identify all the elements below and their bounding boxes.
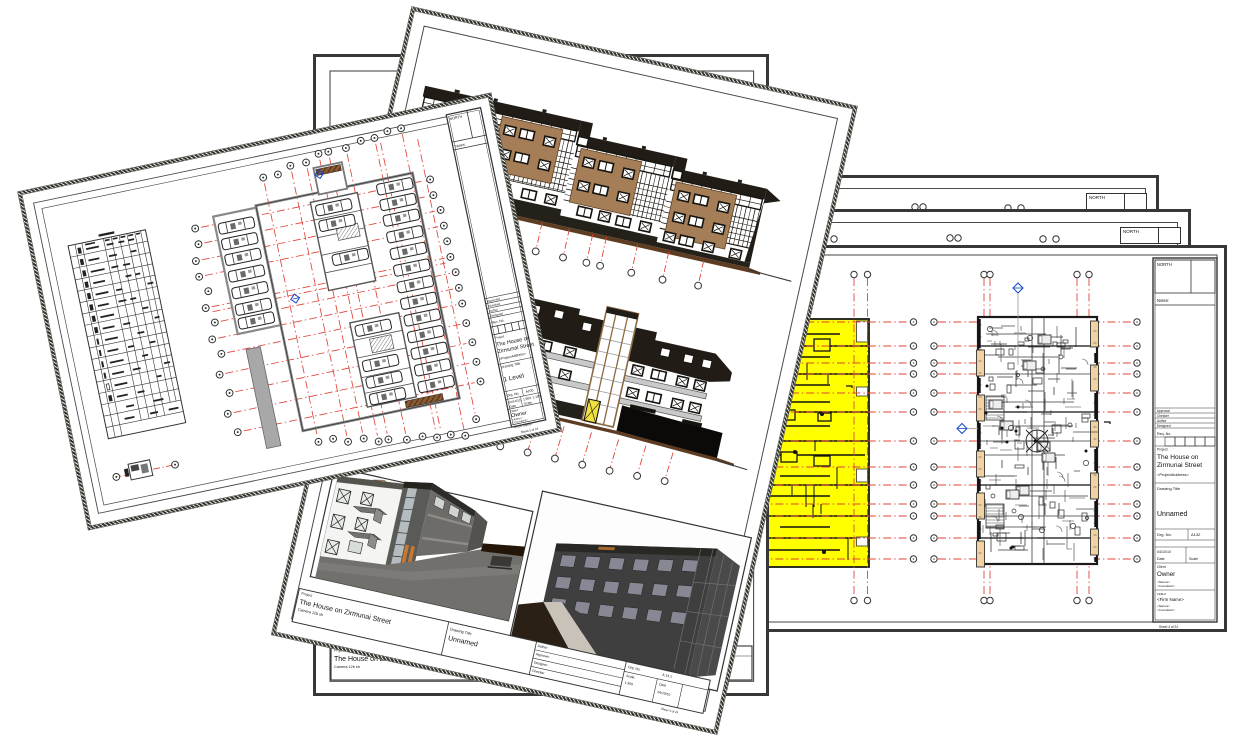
svg-text:04/10/10: 04/10/10	[1157, 550, 1171, 554]
svg-text:Scale: Scale	[1189, 557, 1198, 561]
svg-text:Unnamed: Unnamed	[1157, 511, 1187, 518]
svg-text:Checker: Checker	[1157, 414, 1170, 418]
svg-text:<Consultant>: <Consultant>	[1157, 584, 1175, 588]
svg-text:NORTH: NORTH	[1157, 262, 1172, 267]
svg-text:A132: A132	[1191, 532, 1201, 537]
svg-text:Date: Date	[1157, 557, 1165, 561]
svg-text:<Consultant>: <Consultant>	[1157, 608, 1175, 612]
svg-text:Owner: Owner	[1157, 571, 1175, 578]
svg-text:Designed: Designed	[1157, 424, 1171, 428]
svg-text:Sheet 4 of 24: Sheet 4 of 24	[1159, 625, 1178, 629]
svg-text:Client: Client	[1157, 565, 1166, 569]
svg-text:Int/Ref: Int/Ref	[1157, 592, 1166, 596]
svg-text:<Firm Name>: <Firm Name>	[1157, 597, 1184, 602]
svg-text:Drawing Title: Drawing Title	[1157, 486, 1181, 491]
svg-text:Approval: Approval	[1157, 409, 1170, 413]
svg-text:<ProjectAddress>: <ProjectAddress>	[1157, 472, 1189, 477]
svg-text:Notes:: Notes:	[1157, 298, 1169, 303]
svg-text:Author: Author	[1157, 419, 1167, 423]
svg-text:Req. No.: Req. No.	[1157, 432, 1171, 436]
svg-text:Project: Project	[1157, 448, 1168, 452]
svg-text:Zirmunai Street: Zirmunai Street	[1157, 462, 1202, 469]
svg-text:Camera 12b sh: Camera 12b sh	[334, 664, 360, 668]
svg-text:Drg. No.: Drg. No.	[1157, 532, 1172, 537]
svg-text:The House on: The House on	[1157, 454, 1199, 461]
